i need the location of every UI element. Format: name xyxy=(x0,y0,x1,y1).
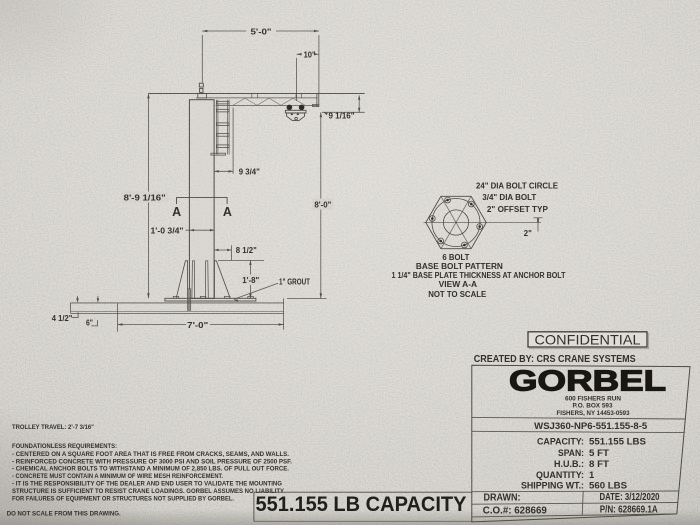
svg-text:8'-0": 8'-0" xyxy=(314,199,331,209)
svg-text:P.O. BOX 593: P.O. BOX 593 xyxy=(573,403,613,410)
svg-text:C.O.#: 628669: C.O.#: 628669 xyxy=(483,505,548,516)
svg-text:2" OFFSET TYP: 2" OFFSET TYP xyxy=(487,204,548,214)
svg-text:TROLLEY TRAVEL: 2'-7 3/16": TROLLEY TRAVEL: 2'-7 3/16" xyxy=(12,424,94,431)
svg-text:10": 10" xyxy=(304,49,316,59)
svg-text:551.155 LB CAPACITY: 551.155 LB CAPACITY xyxy=(256,492,467,516)
svg-text:FOR FAILURES OF EQUIPMENT OR S: FOR FAILURES OF EQUIPMENT OR STRUCTURES … xyxy=(12,495,234,502)
svg-text:3/4" DIA BOLT: 3/4" DIA BOLT xyxy=(482,192,537,202)
svg-text:- IT IS THE RESPONSIBILITY OF: - IT IS THE RESPONSIBILITY OF THE DEALER… xyxy=(12,481,282,488)
svg-text:600 FISHERS RUN: 600 FISHERS RUN xyxy=(565,396,621,403)
svg-text:6": 6" xyxy=(86,317,93,327)
svg-text:24" DIA BOLT CIRCLE: 24" DIA BOLT CIRCLE xyxy=(476,180,558,190)
svg-text:FISHERS, NY 14453-0593: FISHERS, NY 14453-0593 xyxy=(557,410,630,417)
svg-text:- CHEMICAL ANCHOR BOLTS TO WIT: - CHEMICAL ANCHOR BOLTS TO WITHSTAND A M… xyxy=(12,466,289,473)
svg-text:WSJ360-NP6-551.155-8-5: WSJ360-NP6-551.155-8-5 xyxy=(534,421,647,431)
svg-text:5 FT: 5 FT xyxy=(589,448,609,459)
svg-text:8'-9 1/16": 8'-9 1/16" xyxy=(124,192,166,202)
svg-text:NOT TO SCALE: NOT TO SCALE xyxy=(428,289,486,299)
svg-text:2": 2" xyxy=(524,228,532,238)
svg-text:9 1/16": 9 1/16" xyxy=(329,111,355,121)
svg-text:1 1/4" BASE PLATE THICKNESS AT: 1 1/4" BASE PLATE THICKNESS AT ANCHOR BO… xyxy=(392,270,567,280)
svg-text:FOUNDATIONLESS REQUIREMENTS:: FOUNDATIONLESS REQUIREMENTS: xyxy=(12,443,117,450)
svg-text:551.155 LBS: 551.155 LBS xyxy=(589,436,646,447)
svg-text:STRUCTURE IS SUFFICIENT TO RES: STRUCTURE IS SUFFICIENT TO RESIST CRANE … xyxy=(12,488,285,495)
svg-text:7'-0": 7'-0" xyxy=(187,320,208,330)
svg-text:1'-8": 1'-8" xyxy=(242,275,259,285)
svg-text:8 FT: 8 FT xyxy=(589,459,609,470)
svg-text:1'-0 3/4": 1'-0 3/4" xyxy=(151,225,184,235)
svg-text:SHIPPING WT.:: SHIPPING WT.: xyxy=(521,480,584,491)
svg-text:A: A xyxy=(223,205,232,219)
svg-text:P/N: 628669.1A: P/N: 628669.1A xyxy=(600,504,658,515)
svg-text:H.U.B.:: H.U.B.: xyxy=(554,459,584,470)
svg-text:VIEW A-A: VIEW A-A xyxy=(439,279,478,289)
svg-text:1" GROUT: 1" GROUT xyxy=(279,277,310,286)
svg-text:CREATED BY: CRS CRANE SYSTEMS: CREATED BY: CRS CRANE SYSTEMS xyxy=(474,354,636,365)
svg-text:DRAWN:: DRAWN: xyxy=(484,493,521,504)
svg-text:- CENTERED ON A SQUARE FOOT AR: - CENTERED ON A SQUARE FOOT AREA THAT IS… xyxy=(12,451,289,458)
svg-text:1: 1 xyxy=(589,470,595,481)
svg-text:QUANTITY:: QUANTITY: xyxy=(536,470,584,481)
svg-text:- CONCRETE MUST CONTAIN A MINI: - CONCRETE MUST CONTAIN A MINIMUM OF WIR… xyxy=(12,473,223,480)
svg-text:DO NOT SCALE FROM THIS DRAWING: DO NOT SCALE FROM THIS DRAWING. xyxy=(7,510,121,517)
svg-text:560 LBS: 560 LBS xyxy=(589,480,627,491)
svg-text:5'-0": 5'-0" xyxy=(251,26,272,36)
svg-text:4 1/2": 4 1/2" xyxy=(52,313,73,323)
svg-text:- REINFORCED CONCRETE WITH PRE: - REINFORCED CONCRETE WITH PRESSURE OF 3… xyxy=(12,458,292,465)
svg-text:CAPACITY:: CAPACITY: xyxy=(537,436,584,447)
svg-text:DATE: 3/12/2020: DATE: 3/12/2020 xyxy=(600,492,660,503)
svg-text:CONFIDENTIAL: CONFIDENTIAL xyxy=(535,332,641,347)
svg-text:A: A xyxy=(172,205,181,219)
svg-text:8 1/2": 8 1/2" xyxy=(236,245,257,255)
svg-text:9 3/4": 9 3/4" xyxy=(239,166,260,176)
svg-text:SPAN:: SPAN: xyxy=(558,448,584,459)
svg-text:GORBEL: GORBEL xyxy=(509,366,666,398)
